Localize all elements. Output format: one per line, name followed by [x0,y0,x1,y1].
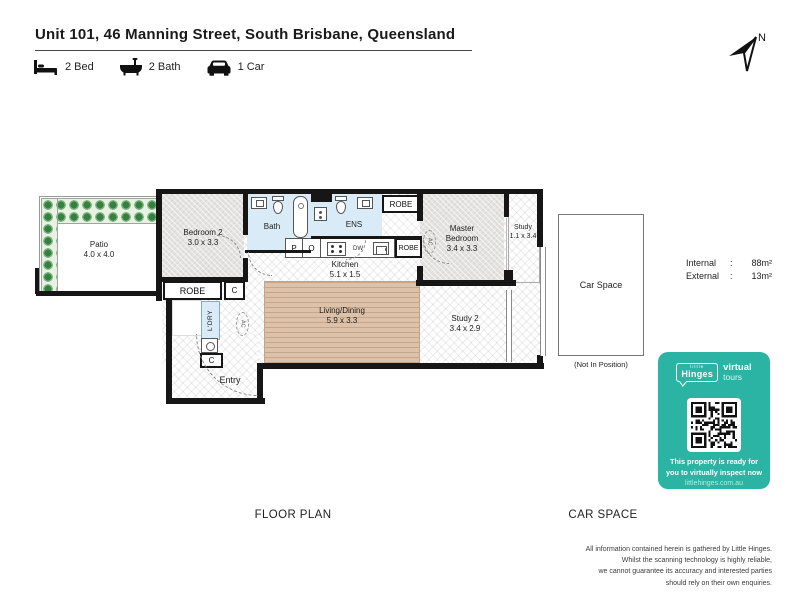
wall-main-bottom [257,363,544,369]
hinges-logo: little Hinges [676,363,718,382]
feature-beds: 2 Bed [34,58,94,76]
wall-duct-block [311,189,332,202]
feature-cars: 1 Car [207,59,265,76]
external-sep: : [730,271,740,281]
internal-label: Internal [686,258,730,268]
planter-top [41,198,159,224]
robe-kitchen-box: ROBE [395,238,422,258]
entry-nook [172,300,202,336]
duct-fixture-icon [314,207,327,221]
wall-patio-bottom [36,291,162,296]
page-title: Unit 101, 46 Manning Street, South Brisb… [35,26,455,43]
robe-bedroom2-box: ROBE [163,281,222,300]
north-label: N [758,32,766,44]
kitchen-label: Kitchen 5.1 x 1.5 [310,260,380,280]
living-dining-label: Living/Dining 5.9 x 3.3 [294,306,390,326]
badge-logo: little Hinges virtual tours [658,352,770,382]
patio-label: Patio 4.0 x 4.0 [59,240,139,260]
ac-marker-hall: AC [236,312,249,336]
feature-cars-label: 1 Car [238,61,265,73]
wall-bedroom2-right-bottom [243,258,248,282]
divider-master-study [506,218,507,270]
internal-value: 88m² [740,258,772,268]
wall-right-tick [537,355,543,364]
window-study2 [506,290,512,362]
car-icon [207,59,231,76]
wall-bedroom2-right-top [243,189,248,235]
feature-baths: 2 Bath [120,58,181,76]
internal-sep: : [730,258,740,268]
feature-baths-label: 2 Bath [149,61,181,73]
car-space-section-label: CAR SPACE [548,509,658,521]
north-arrow: N [726,28,772,78]
wall-top [156,189,542,194]
wall-master-left-top [417,189,423,221]
wall-bedroom2-bottom [156,277,248,282]
planter-left [41,198,58,292]
badge-product: virtual tours [723,363,752,382]
badge-cta: This property is ready for you to virtua… [662,457,766,479]
bath-icon [120,58,142,76]
sink-icon [373,242,389,255]
wall-right-top [537,189,543,247]
study2-label: Study 2 3.4 x 2.9 [421,314,509,334]
external-value: 13m² [740,271,772,281]
disclaimer: All information contained herein is gath… [480,544,772,589]
virtual-tour-badge: little Hinges virtual tours This propert… [658,352,770,489]
wall-ens-bottom [311,236,422,239]
robe-top-box: ROBE [382,195,420,213]
wall-master-bottom [416,280,516,286]
ac-marker-master: AC [423,230,436,254]
car-space-rect: Car Space [558,214,644,356]
bathtub-icon [293,196,308,238]
qr-code [687,398,741,452]
ens-label: ENS [336,220,372,230]
badge-url: littlehinges.com.au [662,480,766,487]
wall-study-left-top [504,189,509,217]
title-underline [35,50,472,51]
bed-icon [34,58,58,76]
feature-beds-label: 2 Bed [65,61,94,73]
wall-left [156,189,162,301]
ens-vanity-icon [357,197,373,209]
window-right [540,247,546,356]
wall-entry-left [166,299,172,400]
stove-icon [327,242,346,256]
oven-box: O [302,238,321,258]
bath-label: Bath [254,222,290,232]
feature-summary: 2 Bed 2 Bath 1 Car [34,58,264,76]
wall-patio-left-stub [35,268,39,294]
pantry-box: P [285,238,303,258]
bath-vanity-icon [251,197,267,209]
wall-entry-bottom [166,398,265,404]
floor-plan-section-label: FLOOR PLAN [233,509,353,521]
car-space-note: (Not In Position) [548,360,654,369]
external-label: External [686,271,730,281]
closet1-box: C [224,281,245,300]
area-totals: Internal : 88m² External : 13m² [686,258,772,281]
